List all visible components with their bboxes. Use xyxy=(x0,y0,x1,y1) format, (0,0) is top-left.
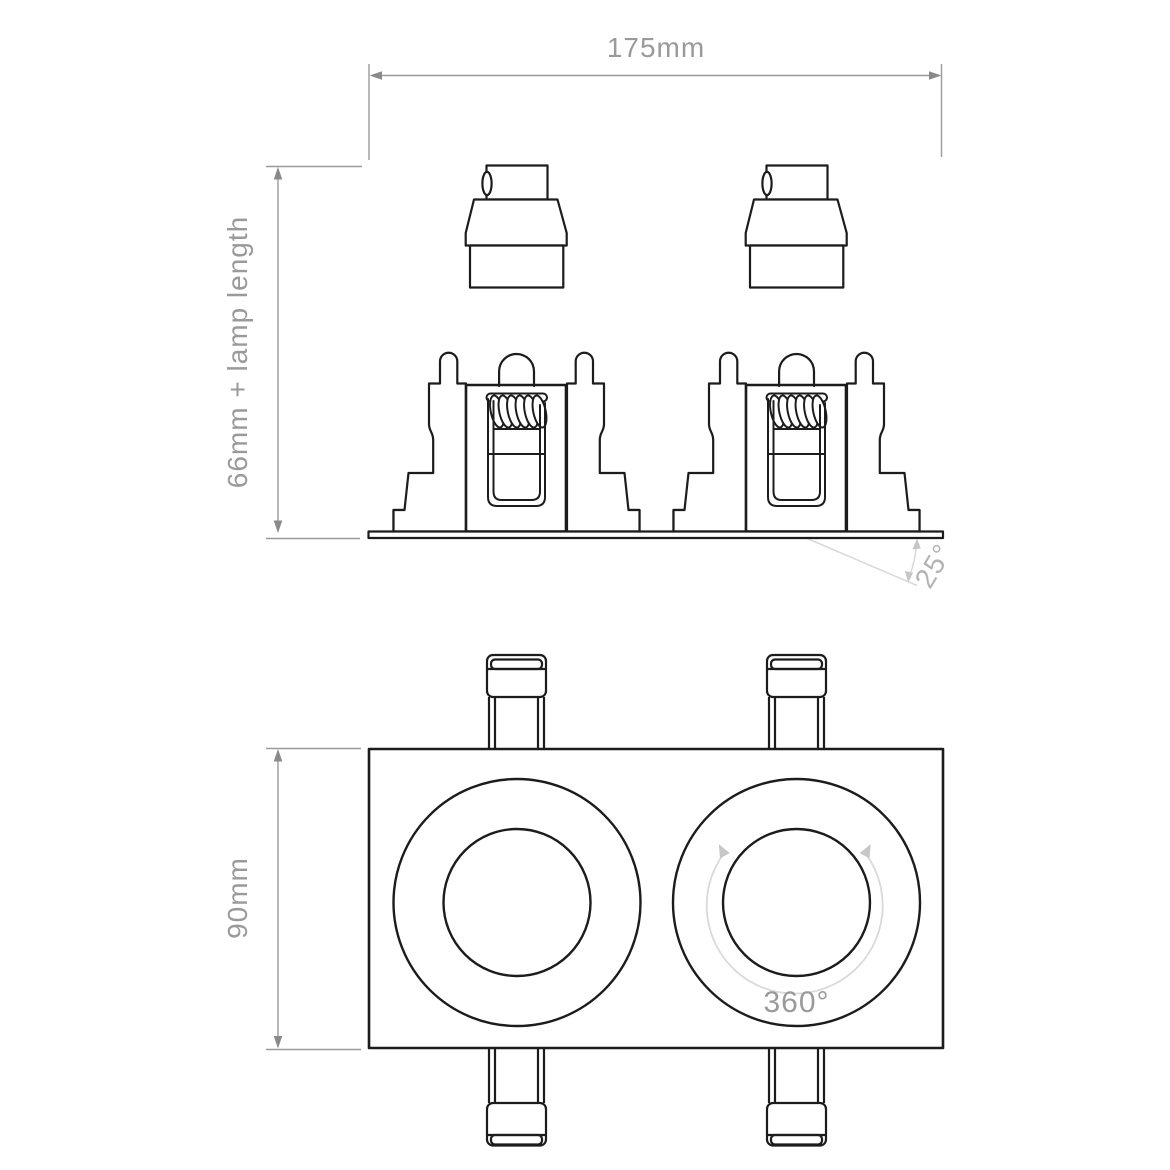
lamp-left xyxy=(466,166,567,288)
arrow-up-icon xyxy=(913,539,921,550)
dimension-width-175 xyxy=(369,64,942,160)
dimension-height-66 xyxy=(266,167,362,539)
tilt-line xyxy=(806,538,917,586)
clip-top-right xyxy=(767,655,826,749)
clip-bottom-left xyxy=(487,1048,546,1146)
lamp-right xyxy=(746,166,847,288)
arrow-down-icon xyxy=(274,1036,283,1049)
label-rotation-360deg: 360° xyxy=(763,986,829,1019)
mounting-plate xyxy=(369,532,944,539)
arrow-down-icon xyxy=(274,521,283,534)
downlight-dimension-drawing: 175mm 66mm + lamp length 90mm 25° xyxy=(0,0,1170,1170)
arrow-left-icon xyxy=(370,71,383,80)
clip-top-left xyxy=(487,655,546,749)
clip-bottom-right xyxy=(767,1048,826,1146)
tilt-angle-annotation: 25° xyxy=(806,538,959,593)
housing-left xyxy=(394,353,640,532)
technical-drawing-page: 175mm 66mm + lamp length 90mm 25° xyxy=(0,0,1170,1170)
arrow-up-icon xyxy=(274,167,283,180)
arrow-up-icon xyxy=(274,749,283,762)
label-height-66mm: 66mm + lamp length xyxy=(222,216,253,488)
label-height-90mm: 90mm xyxy=(222,857,253,939)
side-elevation xyxy=(369,166,944,539)
dimension-height-90 xyxy=(266,749,361,1050)
label-width-175mm: 175mm xyxy=(607,32,705,63)
trim-ring-left xyxy=(394,779,641,1026)
plan-view xyxy=(369,655,943,1146)
housing-right xyxy=(674,353,920,532)
arrow-right-icon xyxy=(929,71,942,80)
